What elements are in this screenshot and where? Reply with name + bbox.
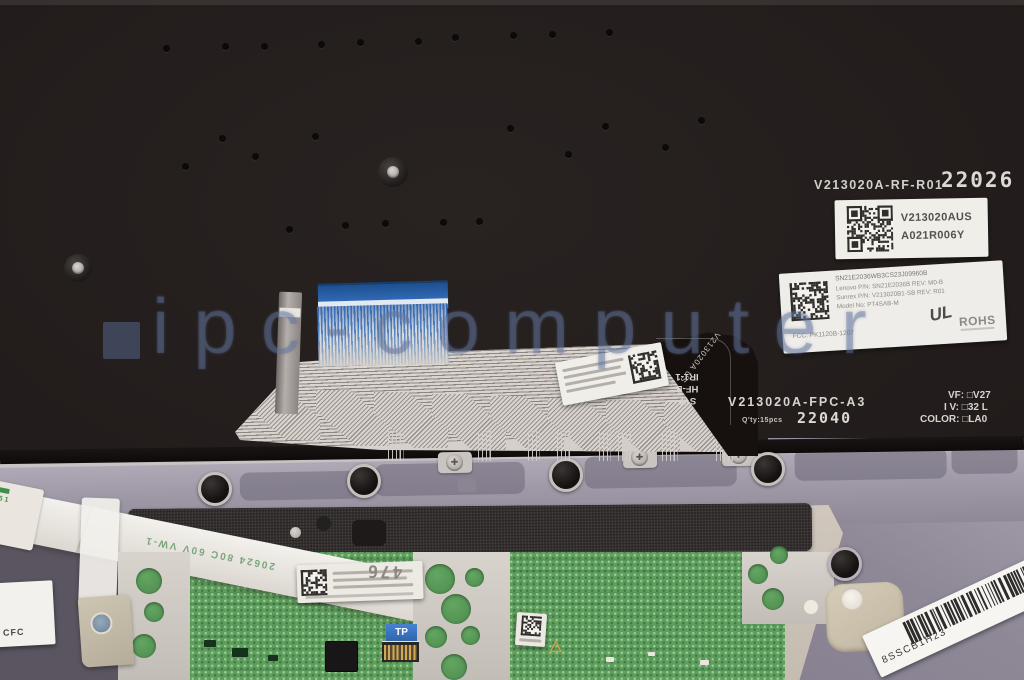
fpc-part-print: V213020A-FPC-A3 (728, 395, 866, 409)
frame-hole (425, 564, 455, 594)
rivet-dot (252, 153, 259, 160)
fpc-opt-color: COLOR: □LA0 (920, 414, 987, 425)
connector-tail (599, 431, 611, 461)
frame-hole (461, 626, 480, 645)
qr-label-part: V213020AUS (901, 211, 972, 224)
rivet-dot (415, 38, 422, 45)
frame-hole (762, 588, 784, 610)
plate-screw-pin (72, 262, 84, 274)
tp-tab-label: TP (395, 627, 408, 638)
rivet-dot (662, 144, 669, 151)
deck-rivet (290, 527, 301, 538)
rivet-dot (312, 133, 319, 140)
frame-hole (136, 568, 162, 594)
rail-screw-black (347, 464, 381, 498)
qr-label-rev: A021R006Y (901, 229, 965, 242)
label-text-line (519, 638, 541, 643)
rail-screw-silver: ✚ (631, 449, 648, 466)
rivet-dot (549, 31, 556, 38)
rivet-dot (261, 43, 268, 50)
frame-hole (144, 602, 164, 622)
rivet-dot (452, 34, 459, 41)
fpc-date-stamp: 22040 (797, 409, 852, 427)
plate-top-edge (0, 0, 1024, 5)
rail-nub (458, 478, 476, 492)
pcb-pad (648, 652, 655, 656)
photo-keyboard-assembly: 26 1 20624 80C 60V VW-1 476 TP (0, 0, 1024, 680)
corner-label-text: CFC (3, 627, 25, 638)
plate-date-stamp: 22026 (941, 168, 1014, 192)
rail-screw-black (549, 458, 583, 492)
connector-tail (557, 431, 571, 461)
rail-screw-silver: ✚ (446, 454, 463, 471)
connector-pins (384, 645, 417, 660)
rivet-dot (382, 220, 389, 227)
rivet-dot (698, 117, 705, 124)
pcb-component (268, 655, 278, 661)
rail-screw-black (751, 452, 785, 486)
frame-hole (748, 564, 768, 584)
frame-hole (465, 568, 484, 587)
rail-screw-black (198, 472, 232, 506)
qr-code-svg (847, 205, 894, 252)
plate-part-print: V213020A-RF-R01 (814, 178, 944, 192)
frame-hole (441, 594, 471, 624)
datamatrix-svg (521, 615, 542, 636)
connector-tail (618, 431, 631, 461)
tape-strip (78, 497, 120, 608)
watermark-text: ipc-computer (152, 281, 891, 372)
rivet-dot (602, 123, 609, 130)
rivet-dot (163, 45, 170, 52)
touchpad-stamp: 476 (366, 560, 403, 581)
rivet-dot (507, 125, 514, 132)
fpc-mark-line2: HF-B (664, 382, 710, 394)
ul-mark: UL (928, 302, 954, 326)
tp-flex-tab: TP (386, 624, 417, 641)
pcb-component (232, 648, 248, 657)
touchpad-frame-right (742, 552, 834, 624)
rivet-dot (219, 135, 226, 142)
frame-hole (425, 626, 447, 648)
plate-screw (378, 157, 408, 187)
foot-pin (840, 587, 863, 610)
ffc-end-stripe (0, 487, 10, 494)
pcb-small-label (515, 612, 547, 647)
datamatrix-svg (301, 569, 328, 596)
label-text-line (333, 583, 413, 589)
bracket-hole (316, 516, 331, 531)
frame-hole (441, 654, 467, 680)
rivet-dot (182, 163, 189, 170)
ic-chip (325, 641, 358, 672)
rivet-dot (565, 151, 572, 158)
tp-connector (382, 641, 419, 662)
plate-screw (64, 254, 92, 282)
ffc-end-connector: 26 1 (0, 480, 44, 551)
rivet-dot (440, 219, 447, 226)
corner-bracket (78, 594, 135, 667)
rivet-dot (357, 39, 364, 46)
frame-pad (804, 600, 818, 614)
fpc-opt-vf: VF: □V27 (948, 390, 991, 401)
rail-slot (240, 471, 360, 501)
connector-tail (528, 431, 540, 461)
pcb-pad (606, 657, 614, 662)
watermark-logo-square (103, 322, 140, 359)
pcb-triangle-mark: △ (550, 636, 562, 654)
ffc-end-mark: 26 1 (0, 494, 9, 504)
frame-hole (770, 546, 788, 564)
connector-tail (662, 431, 678, 461)
connector-tail (388, 431, 404, 461)
qr-code (847, 205, 894, 257)
connector-tail (478, 431, 491, 461)
rivet-dot (222, 43, 229, 50)
fpc-opt-iv: I V: □32 L (944, 402, 988, 413)
frame-hole (132, 634, 156, 658)
rivet-dot (342, 222, 349, 229)
pcb-component (204, 640, 216, 647)
fpc-qty-print: Q'ty:15pcs (742, 417, 783, 424)
corner-label: CFC (0, 580, 56, 647)
bracket-screw-hole (90, 612, 113, 635)
bracket-clip (352, 520, 386, 546)
rivet-dot (476, 218, 483, 225)
plate-screw-pin (387, 166, 399, 178)
qr-part-label: V213020AUS A021R006Y (834, 198, 988, 260)
touchpad-label (296, 561, 423, 603)
rivet-dot (606, 29, 613, 36)
pcb-pad (700, 660, 709, 665)
fpc-mark-line1: SYF (664, 394, 710, 406)
touchpad-frame-center (413, 552, 510, 680)
rivet-dot (510, 32, 517, 39)
rivet-dot (318, 41, 325, 48)
rivet-dot (286, 226, 293, 233)
palmrest-screw-black (828, 547, 862, 581)
